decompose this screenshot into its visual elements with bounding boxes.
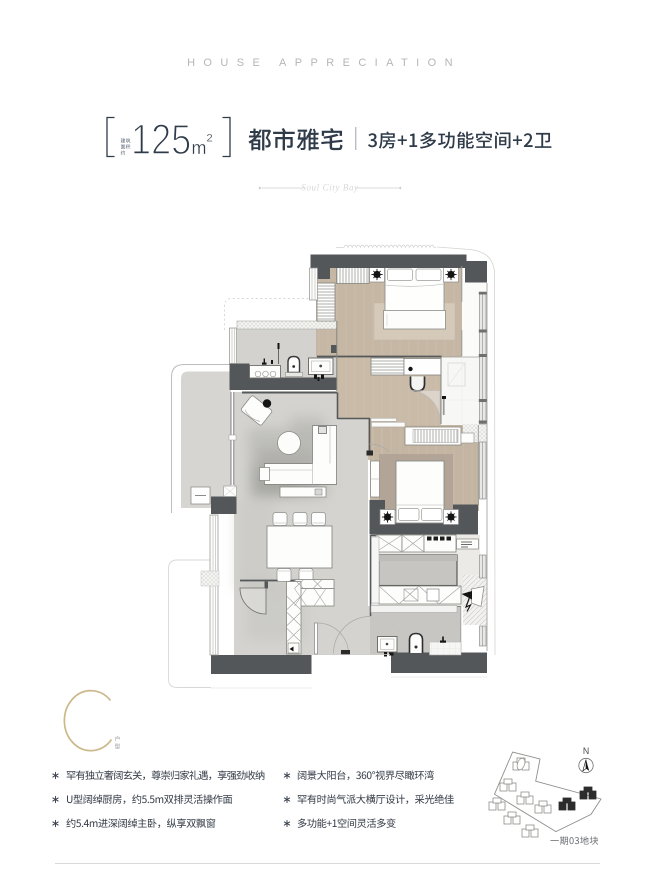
svg-text:125: 125 (131, 116, 191, 163)
svg-text:HOUSE APPRECIATION: HOUSE APPRECIATION (187, 57, 461, 69)
svg-text:N: N (583, 746, 589, 756)
svg-text:Soul City Bay: Soul City Bay (301, 183, 358, 193)
svg-text:m: m (192, 138, 207, 158)
svg-text:2: 2 (207, 133, 213, 145)
